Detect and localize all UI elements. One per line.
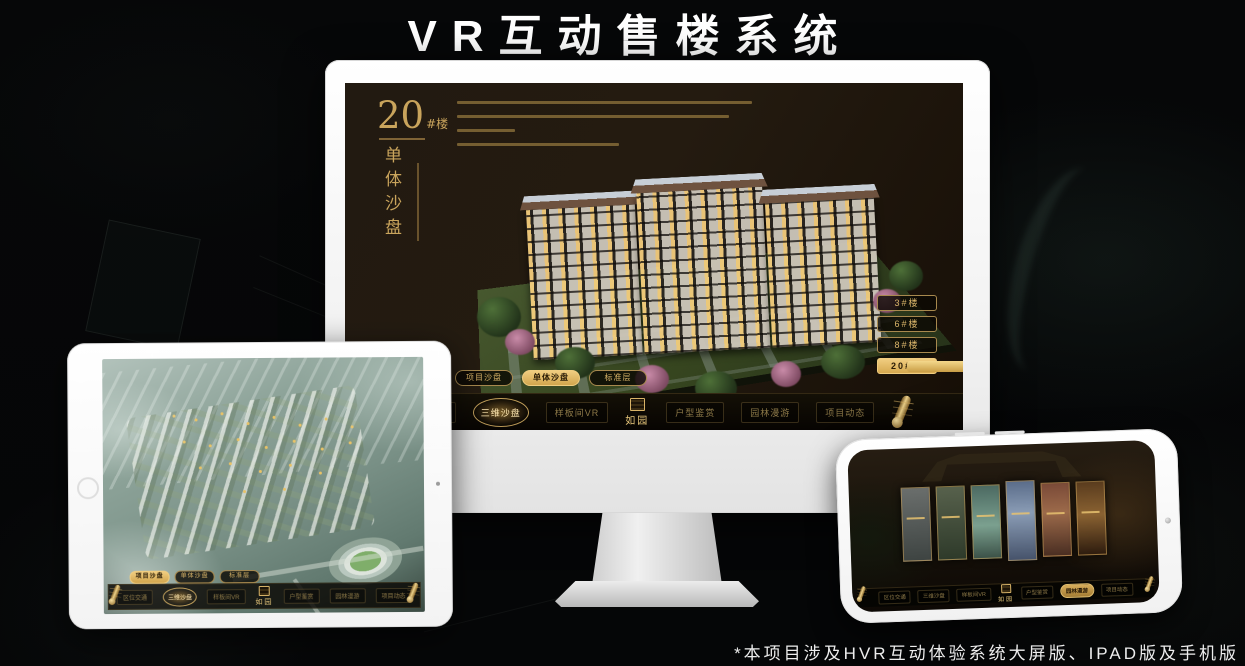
- tree-pink: [771, 361, 801, 387]
- subtab-project-sandtable[interactable]: 项目沙盘: [455, 370, 513, 386]
- description-text-lines: [457, 101, 752, 157]
- subtab-standard-floor[interactable]: 标准层: [589, 370, 647, 386]
- nav-item-3d-sandtable[interactable]: 三维沙盘: [473, 398, 529, 427]
- nav-item-project-news[interactable]: 项目动态: [1101, 582, 1133, 596]
- subtab-single-sandtable[interactable]: 单体沙盘: [522, 370, 580, 386]
- tree-pink: [505, 329, 535, 355]
- building-wing-left: [526, 204, 643, 360]
- nav-item-garden-roam[interactable]: 园林漫游: [741, 402, 799, 423]
- heading-divider: [379, 138, 425, 140]
- building-heading: 20#楼 单体沙盘: [377, 97, 448, 242]
- building-number: 20#楼: [377, 97, 448, 134]
- phone-device: 区位交通 三维沙盘 样板间VR 如园 户型鉴赏 园林漫游 项目动态: [835, 428, 1183, 624]
- floor-button-6[interactable]: 6#楼: [877, 316, 937, 332]
- page-title: VR互动售楼系统: [0, 0, 1245, 64]
- nav-item-location-traffic[interactable]: 区位交通: [879, 590, 911, 604]
- nav-item-showroom-vr[interactable]: 样板间VR: [957, 587, 992, 601]
- camera-icon: [436, 482, 440, 486]
- scroll-icon[interactable]: [895, 395, 910, 429]
- tablet-subtab-group: 项目沙盘 单体沙盘 标准层: [130, 570, 260, 584]
- volume-button[interactable]: [955, 432, 985, 436]
- nav-item-3d-sandtable[interactable]: 三维沙盘: [163, 587, 197, 606]
- scroll-icon[interactable]: [111, 584, 120, 605]
- nav-item-garden-roam[interactable]: 园林漫游: [329, 588, 365, 603]
- sub-tab-group: 项目沙盘 单体沙盘 标准层: [455, 370, 647, 386]
- panorama-card[interactable]: [935, 486, 967, 561]
- panorama-card[interactable]: [1040, 482, 1072, 557]
- nav-item-garden-roam[interactable]: 园林漫游: [1060, 583, 1094, 598]
- floor-button-3[interactable]: 3#楼: [877, 295, 937, 311]
- heading-vertical-rule: [417, 163, 419, 241]
- nav-item-showroom-vr[interactable]: 样板间VR: [546, 402, 609, 423]
- gold-side-tab[interactable]: [907, 361, 963, 372]
- camera-icon: [1165, 517, 1171, 523]
- scroll-icon[interactable]: [858, 586, 866, 603]
- panorama-card[interactable]: [970, 484, 1002, 559]
- tree: [889, 261, 923, 291]
- tablet-device: 项目沙盘 单体沙盘 标准层 区位交通 三维沙盘 样板间VR 如园 户型鉴赏 园林…: [67, 341, 453, 630]
- ruyuan-logo: 如园: [998, 583, 1015, 603]
- ruyuan-logo-icon: [1001, 583, 1011, 592]
- ruyuan-logo: 如园: [625, 398, 649, 427]
- tablet-navbar: 区位交通 三维沙盘 样板间VR 如园 户型鉴赏 园林漫游 项目动态: [108, 582, 421, 610]
- poster: VR互动售楼系统 20#楼 单体沙盘: [0, 0, 1245, 666]
- phone-screen: 区位交通 三维沙盘 样板间VR 如园 户型鉴赏 园林漫游 项目动态: [847, 440, 1159, 613]
- nav-item-floorplan[interactable]: 户型鉴赏: [666, 402, 724, 423]
- nav-item-showroom-vr[interactable]: 样板间VR: [207, 589, 245, 604]
- tree: [821, 345, 865, 379]
- panorama-card[interactable]: [1005, 480, 1037, 561]
- tablet-subtab-standard-floor[interactable]: 标准层: [220, 570, 260, 583]
- ruyuan-logo: 如园: [255, 585, 273, 606]
- scroll-icon[interactable]: [1146, 576, 1154, 593]
- building-center: [637, 187, 771, 354]
- nav-item-project-news[interactable]: 项目动态: [816, 402, 874, 423]
- model-building: [525, 166, 882, 360]
- nav-item-location-traffic[interactable]: 区位交通: [117, 589, 153, 604]
- ruyuan-logo-icon: [630, 398, 645, 411]
- ruyuan-logo-icon: [259, 585, 270, 595]
- tablet-screen: 项目沙盘 单体沙盘 标准层 区位交通 三维沙盘 样板间VR 如园 户型鉴赏 园林…: [102, 357, 425, 614]
- floor-button-8[interactable]: 8#楼: [877, 337, 937, 353]
- monitor-stand-neck: [592, 513, 722, 585]
- tablet-subtab-project-sandtable[interactable]: 项目沙盘: [130, 571, 170, 584]
- footnote: *本项目涉及HVR互动体验系统大屏版、IPAD版及手机版: [734, 639, 1239, 664]
- home-button[interactable]: [77, 477, 99, 499]
- nav-item-3d-sandtable[interactable]: 三维沙盘: [918, 589, 950, 603]
- building-wing-right: [765, 198, 882, 348]
- volume-button[interactable]: [995, 430, 1025, 434]
- tablet-subtab-single-sandtable[interactable]: 单体沙盘: [175, 570, 215, 583]
- panorama-card[interactable]: [1075, 481, 1107, 556]
- nav-item-floorplan[interactable]: 户型鉴赏: [283, 588, 319, 603]
- scroll-icon[interactable]: [409, 582, 418, 603]
- heading-vertical-label: 单体沙盘: [379, 146, 404, 242]
- panorama-card-gallery: [900, 478, 1107, 565]
- monitor-stand-base: [555, 581, 759, 607]
- panorama-card[interactable]: [900, 487, 932, 562]
- nav-item-floorplan[interactable]: 户型鉴赏: [1021, 585, 1053, 599]
